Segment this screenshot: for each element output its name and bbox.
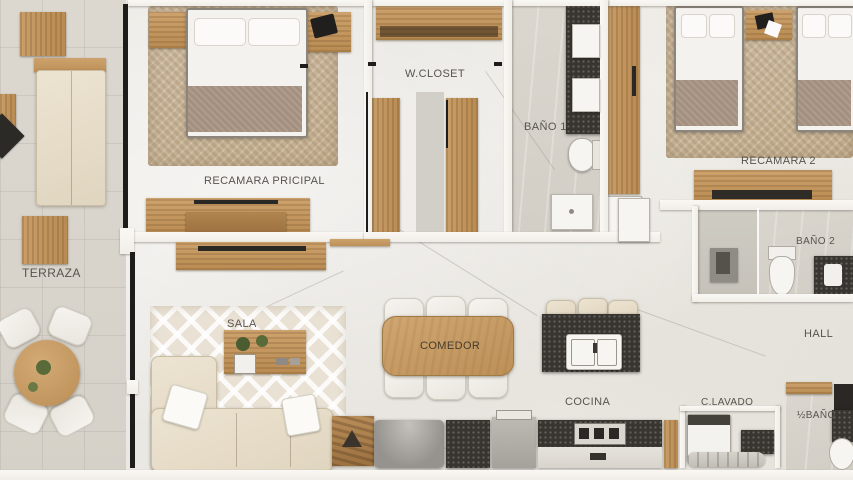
sofa-cushion-seam — [71, 71, 72, 205]
terrace-sofa — [36, 70, 106, 206]
laundry-wall-right — [775, 406, 780, 468]
coffee-table — [224, 330, 306, 374]
closet-handle — [632, 66, 636, 96]
bedroom2-nightstand — [746, 10, 792, 40]
wardrobe-shadow — [380, 26, 498, 37]
kitchen-island — [542, 314, 640, 372]
stove-burner — [579, 428, 589, 439]
hall-tall-closet — [606, 6, 640, 194]
laundry-counter — [741, 430, 774, 454]
room-label-c-lavado: C.LAVADO — [701, 397, 753, 408]
hall-door-panel — [618, 198, 650, 242]
room-label-cocina: COCINA — [565, 396, 610, 408]
sink-basin — [597, 339, 617, 366]
window-line-mid — [130, 252, 135, 382]
cabinet-handle — [590, 453, 606, 460]
bedroom1-dresser — [146, 198, 310, 236]
floor-plan: TERRAZA RECAMARA PRICIPAL W.CLOSET BAÑO … — [0, 0, 853, 480]
bedroom2-bed-right — [796, 6, 853, 132]
faucet-icon — [593, 343, 597, 353]
dresser-lower-tier — [186, 212, 286, 234]
door-frame-mark — [494, 62, 502, 66]
wall-bath2-bottom — [692, 294, 853, 302]
sink-basin — [571, 339, 595, 366]
room-label-sala: SALA — [227, 318, 257, 330]
decor-book — [276, 358, 288, 365]
marble-vein — [624, 304, 765, 356]
paper-on-nightstand — [764, 20, 782, 38]
shower-fixture — [716, 252, 730, 274]
kitchen-pantry-unit — [446, 420, 490, 468]
wall-under-closet — [364, 232, 660, 242]
plant-icon — [256, 335, 268, 347]
terrace-coffee-table — [22, 216, 68, 264]
sofa-side-table — [332, 416, 374, 466]
tv-console — [176, 242, 326, 270]
bath2-shower-mat — [710, 248, 738, 282]
bed-blanket — [798, 80, 851, 126]
decor-book — [290, 358, 300, 365]
stove-burner — [609, 428, 619, 439]
room-label-bano-1: BAÑO 1 — [524, 121, 567, 133]
bath1-sink — [572, 24, 600, 58]
pillow — [802, 14, 826, 38]
closet-unit-right — [446, 98, 478, 238]
bedroom2-bed-left — [674, 6, 744, 132]
wall-bath2-left — [692, 206, 698, 302]
pillow — [709, 14, 735, 38]
shower-glass-partition — [757, 208, 759, 294]
bath1-shower-tray — [551, 194, 593, 230]
door-frame-mark — [300, 64, 308, 68]
terrace-side-table — [20, 12, 66, 56]
window-jamb — [120, 228, 134, 254]
half-bath-toilet — [829, 438, 853, 470]
bed-blanket — [676, 80, 738, 126]
laundry-wall-left — [680, 406, 685, 468]
bath2-vanity — [814, 256, 853, 294]
closet-aisle-floor — [416, 92, 444, 240]
console-shelf-extension — [330, 239, 390, 246]
plant-icon — [36, 360, 51, 375]
bath2-sink — [824, 264, 842, 286]
room-label-bano-2: BAÑO 2 — [796, 236, 835, 247]
door-frame-mark — [368, 62, 376, 66]
room-label-w-closet: W.CLOSET — [405, 68, 465, 80]
wall-top — [128, 0, 853, 6]
dryer-vent-duct — [687, 452, 765, 467]
room-label-recamara-principal: RECAMARA PRICIPAL — [204, 175, 325, 187]
room-label-terraza: TERRAZA — [22, 266, 81, 280]
room-label-medio-bano: ½BAÑO — [797, 410, 836, 421]
bedroom2-dresser — [694, 170, 832, 202]
shower-drain — [569, 209, 574, 214]
sofa-pillow — [281, 393, 321, 436]
decor-tray — [234, 354, 256, 374]
closet-door-track — [366, 92, 368, 232]
pillow — [248, 18, 300, 46]
island-sink-unit — [566, 334, 622, 370]
dresser-decor-strip — [194, 200, 278, 204]
kitchen-lower-cabinet — [538, 447, 662, 468]
kitchen-counter — [538, 420, 662, 447]
closet-unit-left — [372, 98, 400, 238]
half-bath-shelf — [786, 382, 832, 394]
bedroom1-bed — [186, 8, 308, 138]
oven-handle — [496, 410, 532, 420]
pillow — [828, 14, 852, 38]
wall-closet-bath1 — [504, 0, 512, 232]
sofa-cushion-seam — [236, 413, 237, 467]
pillow — [681, 14, 707, 38]
bedroom1-nightstand-left — [149, 12, 189, 48]
closet-rail-mark — [446, 100, 448, 148]
washer-control-panel — [688, 415, 730, 425]
tv-screen — [198, 246, 306, 251]
plant-icon — [236, 337, 250, 351]
room-label-hall: HALL — [804, 328, 833, 340]
dresser-tv-strip — [712, 190, 812, 199]
plant-icon — [28, 382, 38, 392]
window-line-upper — [123, 4, 128, 230]
counter-end-panel — [664, 420, 678, 468]
pillow — [194, 18, 246, 46]
oven-unit — [492, 417, 536, 468]
room-label-recamara-2: RECAMARA 2 — [741, 155, 816, 167]
refrigerator — [374, 420, 444, 468]
wall-bath1-right — [600, 0, 608, 232]
wall-bottom — [0, 470, 853, 480]
triangle-decor-icon — [342, 430, 362, 447]
bed-blanket — [188, 86, 302, 132]
bath1-sink — [572, 78, 600, 112]
window-door-gap — [127, 380, 138, 394]
stove-top — [574, 423, 626, 445]
stove-burner — [594, 428, 604, 439]
closet-top-wardrobe — [376, 4, 502, 40]
half-bath-dark-cabinet — [834, 384, 853, 410]
window-line-lower — [130, 394, 135, 468]
room-label-comedor: COMEDOR — [420, 340, 480, 352]
